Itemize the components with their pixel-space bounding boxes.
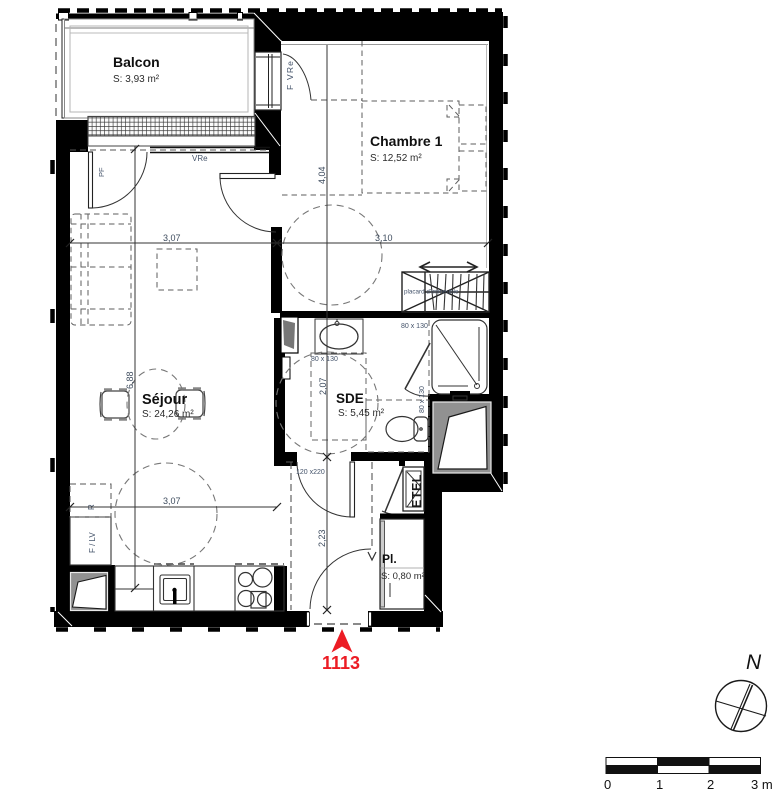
- svg-text:S: 12,52 m²: S: 12,52 m²: [370, 153, 422, 164]
- svg-text:Balcon: Balcon: [113, 54, 160, 70]
- svg-text:3 m: 3 m: [751, 777, 773, 792]
- svg-text:1113: 1113: [322, 653, 360, 673]
- svg-text:0: 0: [604, 777, 611, 792]
- svg-text:120 x220: 120 x220: [296, 469, 325, 476]
- svg-text:Chambre 1: Chambre 1: [370, 133, 443, 149]
- svg-text:6,88: 6,88: [125, 371, 135, 389]
- svg-text:F / LV: F / LV: [88, 532, 97, 553]
- svg-text:3,07: 3,07: [163, 233, 181, 243]
- svg-text:ETEL: ETEL: [410, 474, 424, 508]
- svg-text:SDE: SDE: [336, 391, 364, 406]
- svg-text:2,23: 2,23: [317, 529, 327, 547]
- svg-text:3,07: 3,07: [163, 496, 181, 506]
- svg-text:80 x 130: 80 x 130: [401, 323, 428, 330]
- svg-text:80 x 130: 80 x 130: [419, 386, 426, 413]
- svg-text:S: 0,80 m²: S: 0,80 m²: [381, 571, 425, 582]
- svg-text:80 x 130: 80 x 130: [311, 356, 338, 363]
- svg-text:PF: PF: [97, 167, 106, 177]
- svg-text:VRe: VRe: [192, 154, 208, 163]
- svg-text:placard d'immeuble: placard d'immeuble: [404, 289, 459, 296]
- svg-text:F VRe: F VRe: [285, 60, 295, 90]
- svg-text:3,10: 3,10: [375, 233, 393, 243]
- svg-text:S: 5,45 m²: S: 5,45 m²: [338, 408, 385, 419]
- svg-text:2: 2: [707, 777, 714, 792]
- svg-text:Pl.: Pl.: [382, 552, 397, 566]
- svg-text:S: 3,93 m²: S: 3,93 m²: [113, 74, 160, 85]
- svg-text:4,04: 4,04: [317, 166, 327, 184]
- svg-text:S: 24,26 m²: S: 24,26 m²: [142, 409, 194, 420]
- svg-text:1: 1: [656, 777, 663, 792]
- svg-text:2,07: 2,07: [318, 377, 328, 395]
- svg-text:Séjour: Séjour: [142, 392, 187, 408]
- svg-text:N: N: [746, 651, 762, 674]
